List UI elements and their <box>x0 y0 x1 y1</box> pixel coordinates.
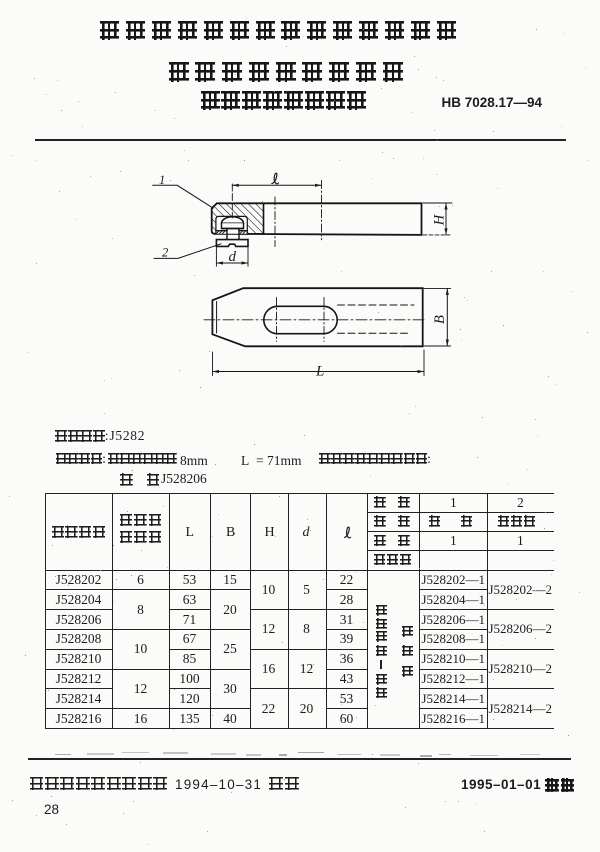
svg-text:2: 2 <box>162 246 168 260</box>
svg-text:B: B <box>432 315 448 324</box>
svg-text:L: L <box>315 364 324 380</box>
svg-text:H: H <box>432 213 448 226</box>
svg-text:d: d <box>229 249 237 265</box>
